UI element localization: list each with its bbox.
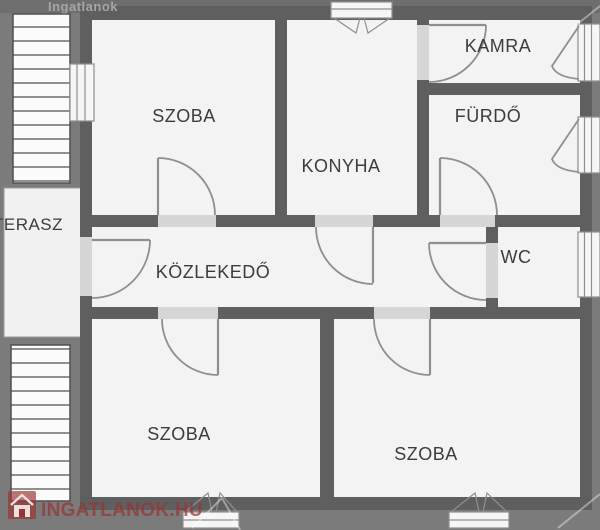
floor-plan-svg: SZOBA KONYHA KAMRA FÜRDŐ TERASZ KÖZLEKED…: [0, 0, 600, 530]
doorway-szoba-top: [158, 215, 216, 227]
doorway-wc: [486, 243, 498, 298]
logo-text: INGATLANOK.HU: [41, 500, 203, 521]
doorway-szoba-bottom-right: [374, 307, 430, 319]
room-label-kozlekedo: KÖZLEKEDŐ: [156, 261, 271, 282]
doorway-terasz-entry: [80, 237, 92, 296]
wall-szoba-divider: [320, 307, 334, 510]
room-label-szoba-bottom-left: SZOBA: [147, 424, 211, 444]
room-label-terasz: TERASZ: [0, 215, 63, 234]
watermark-text: Ingatlanok: [48, 0, 118, 14]
doorway-furdo: [440, 215, 495, 227]
doorway-kamra: [417, 25, 429, 80]
doorway-szoba-bottom-left: [158, 307, 218, 319]
room-label-szoba-top: SZOBA: [152, 106, 216, 126]
floor-plan-canvas: SZOBA KONYHA KAMRA FÜRDŐ TERASZ KÖZLEKED…: [0, 0, 600, 530]
wall-kamra-furdo: [417, 83, 580, 95]
room-label-szoba-bottom-right: SZOBA: [394, 444, 458, 464]
room-label-wc: WC: [501, 247, 532, 267]
room-terasz: [4, 188, 82, 337]
window-wc-right: [578, 232, 600, 297]
doorway-konyha: [315, 215, 373, 227]
wall-szoba-konyha: [275, 18, 287, 227]
room-label-furdo: FÜRDŐ: [455, 105, 522, 126]
room-label-kamra: KAMRA: [465, 36, 532, 56]
window-left-szoba: [70, 64, 94, 121]
stairs-top: [13, 14, 70, 183]
stairs-bottom: [11, 345, 70, 501]
house-icon-door: [19, 509, 25, 517]
room-label-konyha: KONYHA: [301, 156, 380, 176]
